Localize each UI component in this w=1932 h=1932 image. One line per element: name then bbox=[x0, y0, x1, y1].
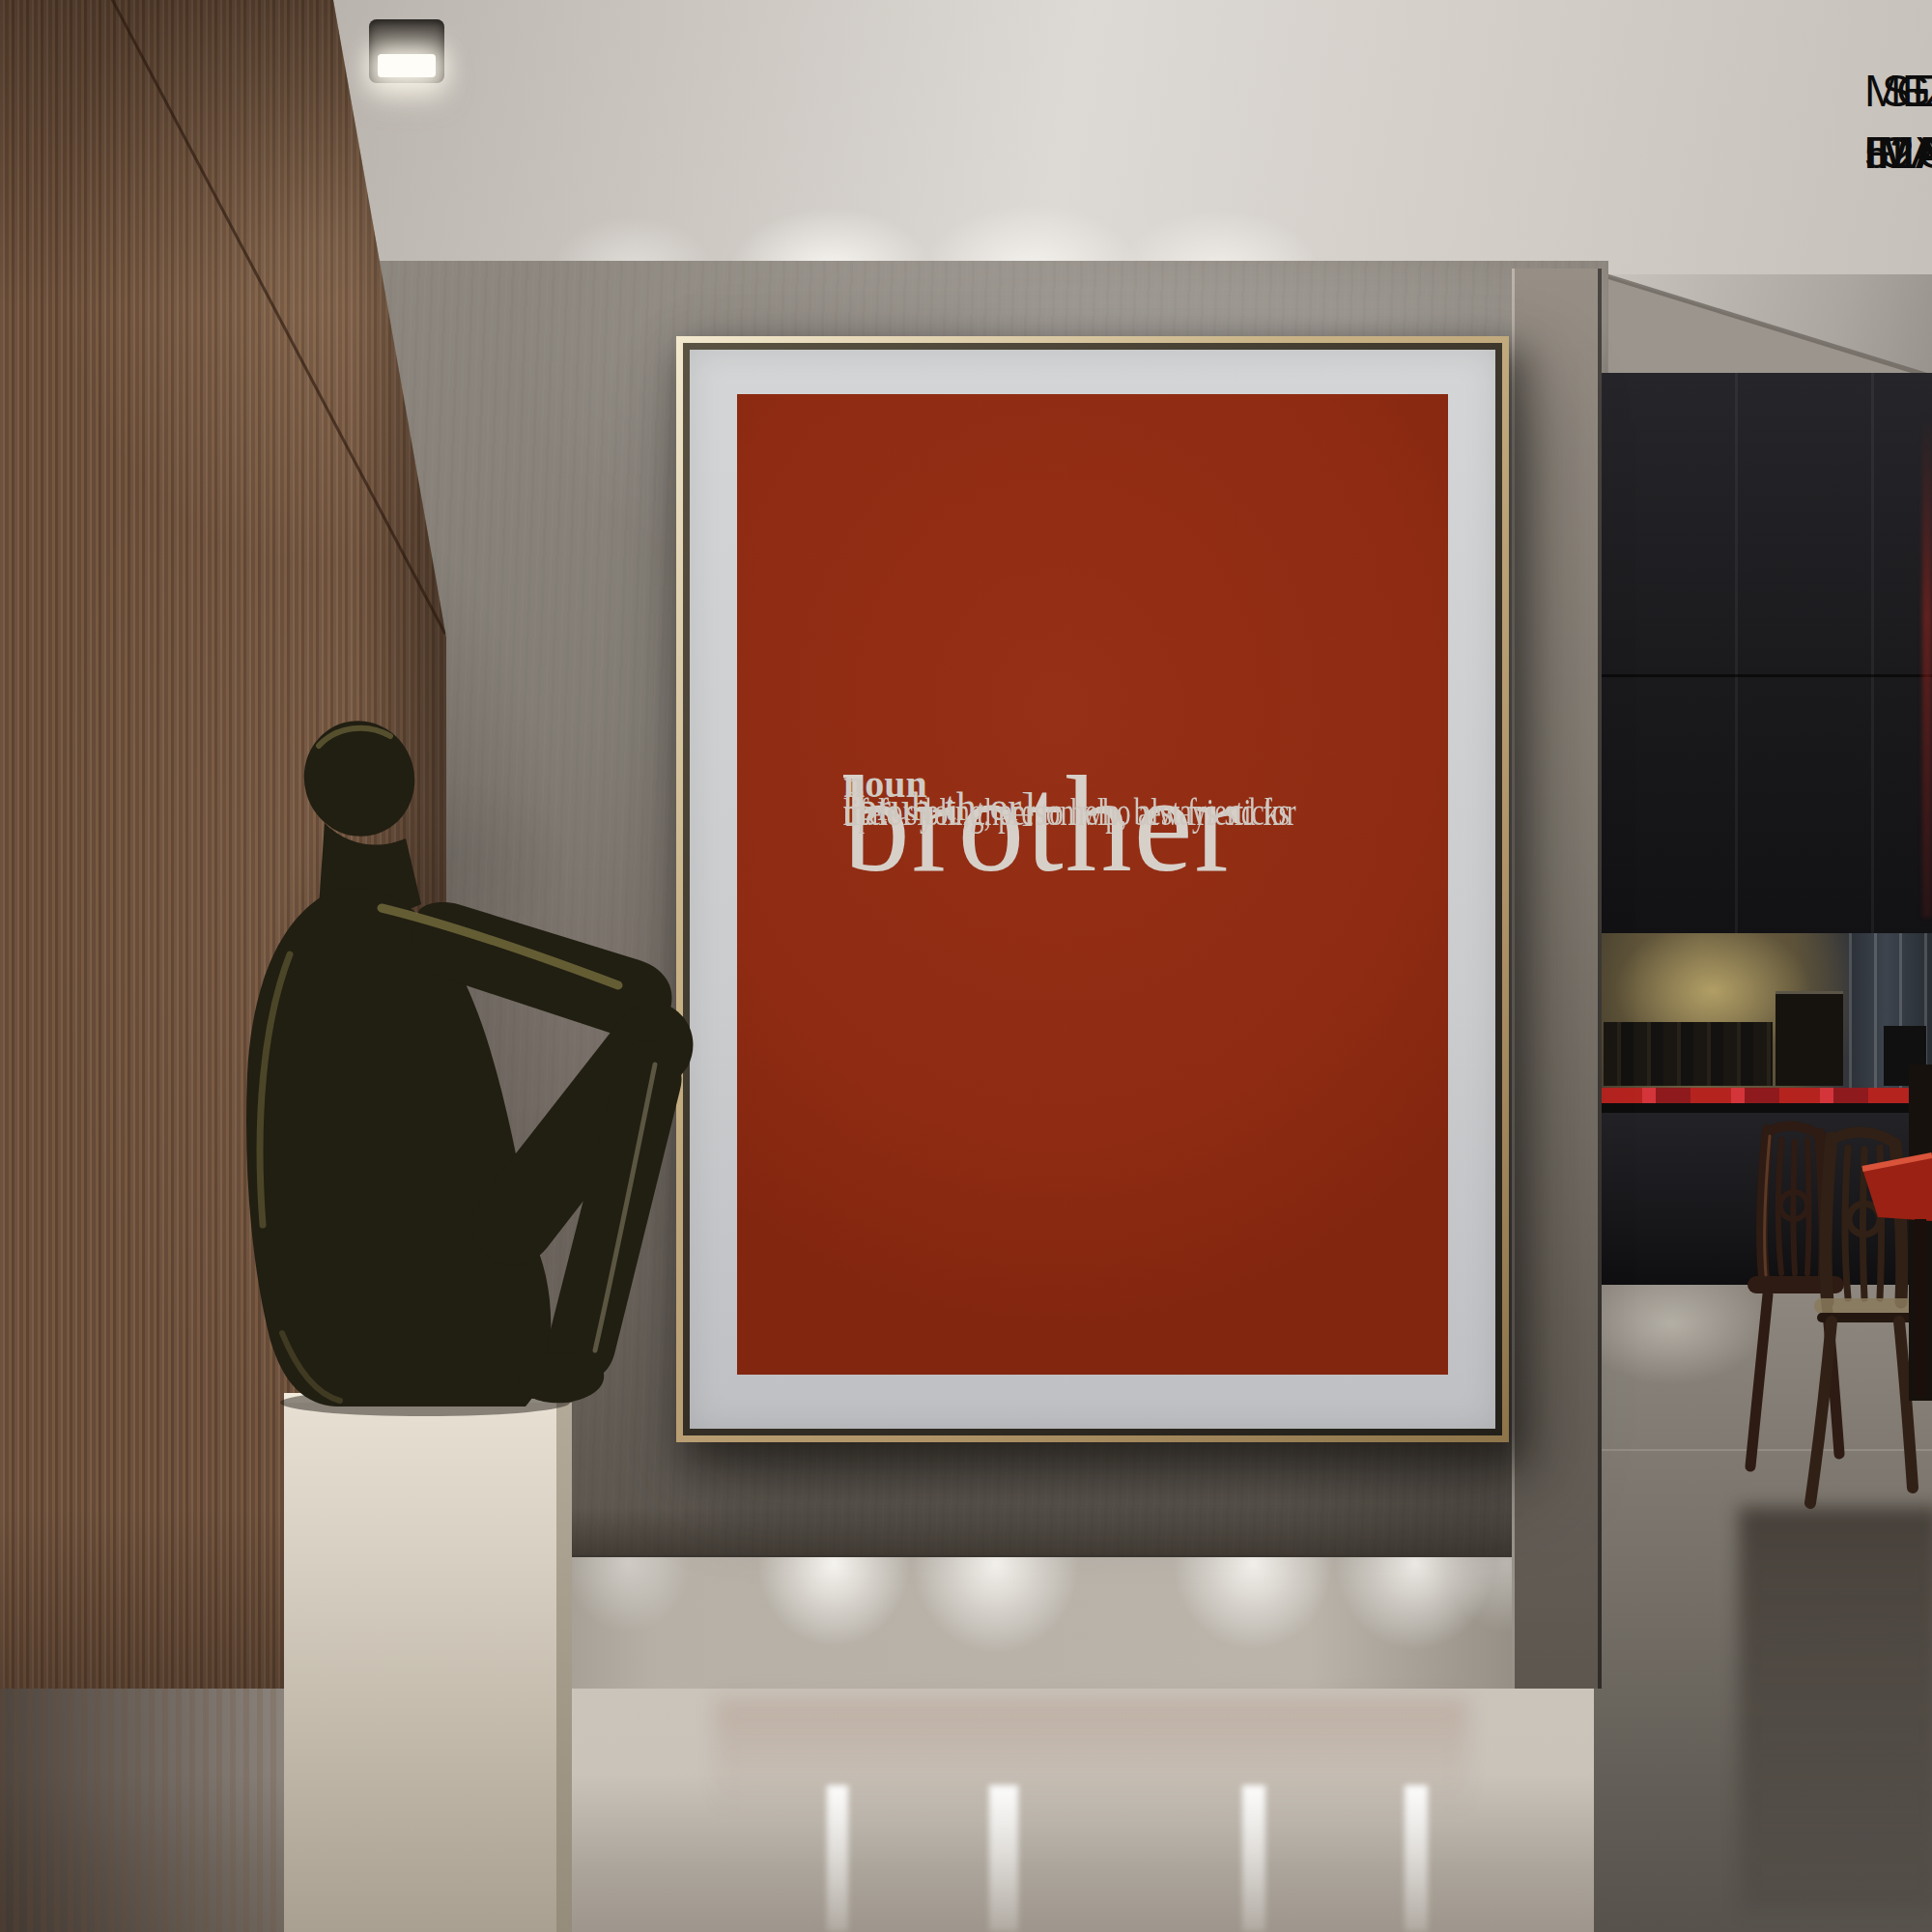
interior-photo-scene: brother [bruh-th-er] noun male sibling, … bbox=[0, 0, 1932, 1932]
annotation-line-frame: GOLDEN FLOATING FRAME bbox=[1864, 60, 1932, 245]
pedestal-side-face bbox=[556, 1403, 572, 1932]
chair-floor-shadow bbox=[1739, 1507, 1932, 1913]
floor-tile-seam bbox=[1594, 1449, 1932, 1451]
counter-items bbox=[1884, 1026, 1926, 1086]
artwork-print: brother [bruh-th-er] noun male sibling, … bbox=[737, 394, 1448, 1375]
concrete-column bbox=[1512, 269, 1602, 1689]
light-reflection-streak bbox=[1405, 1785, 1428, 1932]
counter-bottles bbox=[1604, 1022, 1773, 1086]
counter-red-accent bbox=[1602, 1088, 1932, 1103]
dark-upper-cabinets bbox=[1602, 373, 1932, 933]
light-reflection-streak bbox=[1242, 1785, 1265, 1932]
light-reflection-streak bbox=[827, 1785, 848, 1932]
poster-definition-line: up for you, there to help, best friend f… bbox=[843, 792, 1296, 833]
marble-floor bbox=[0, 1689, 1604, 1932]
plinth-with-uplights bbox=[440, 1557, 1526, 1689]
counter-appliance bbox=[1776, 991, 1843, 1086]
lit-backsplash bbox=[1602, 933, 1932, 1088]
wall-base-shadow bbox=[440, 1507, 1623, 1559]
cabinet-seam bbox=[1602, 674, 1932, 677]
poster-definition-line: life. bbox=[843, 792, 889, 833]
light-reflection-streak bbox=[989, 1785, 1018, 1932]
artwork-golden-frame: brother [bruh-th-er] noun male sibling, … bbox=[676, 336, 1509, 1442]
sculpture-pedestal bbox=[284, 1403, 556, 1932]
red-glass-reflection bbox=[1922, 415, 1932, 918]
kitchen-floor bbox=[1594, 1285, 1932, 1932]
base-cabinets bbox=[1602, 1113, 1932, 1285]
counter-edge bbox=[1602, 1103, 1932, 1113]
recessed-downlight bbox=[369, 19, 444, 83]
downlight-lamp-glow bbox=[378, 54, 436, 77]
